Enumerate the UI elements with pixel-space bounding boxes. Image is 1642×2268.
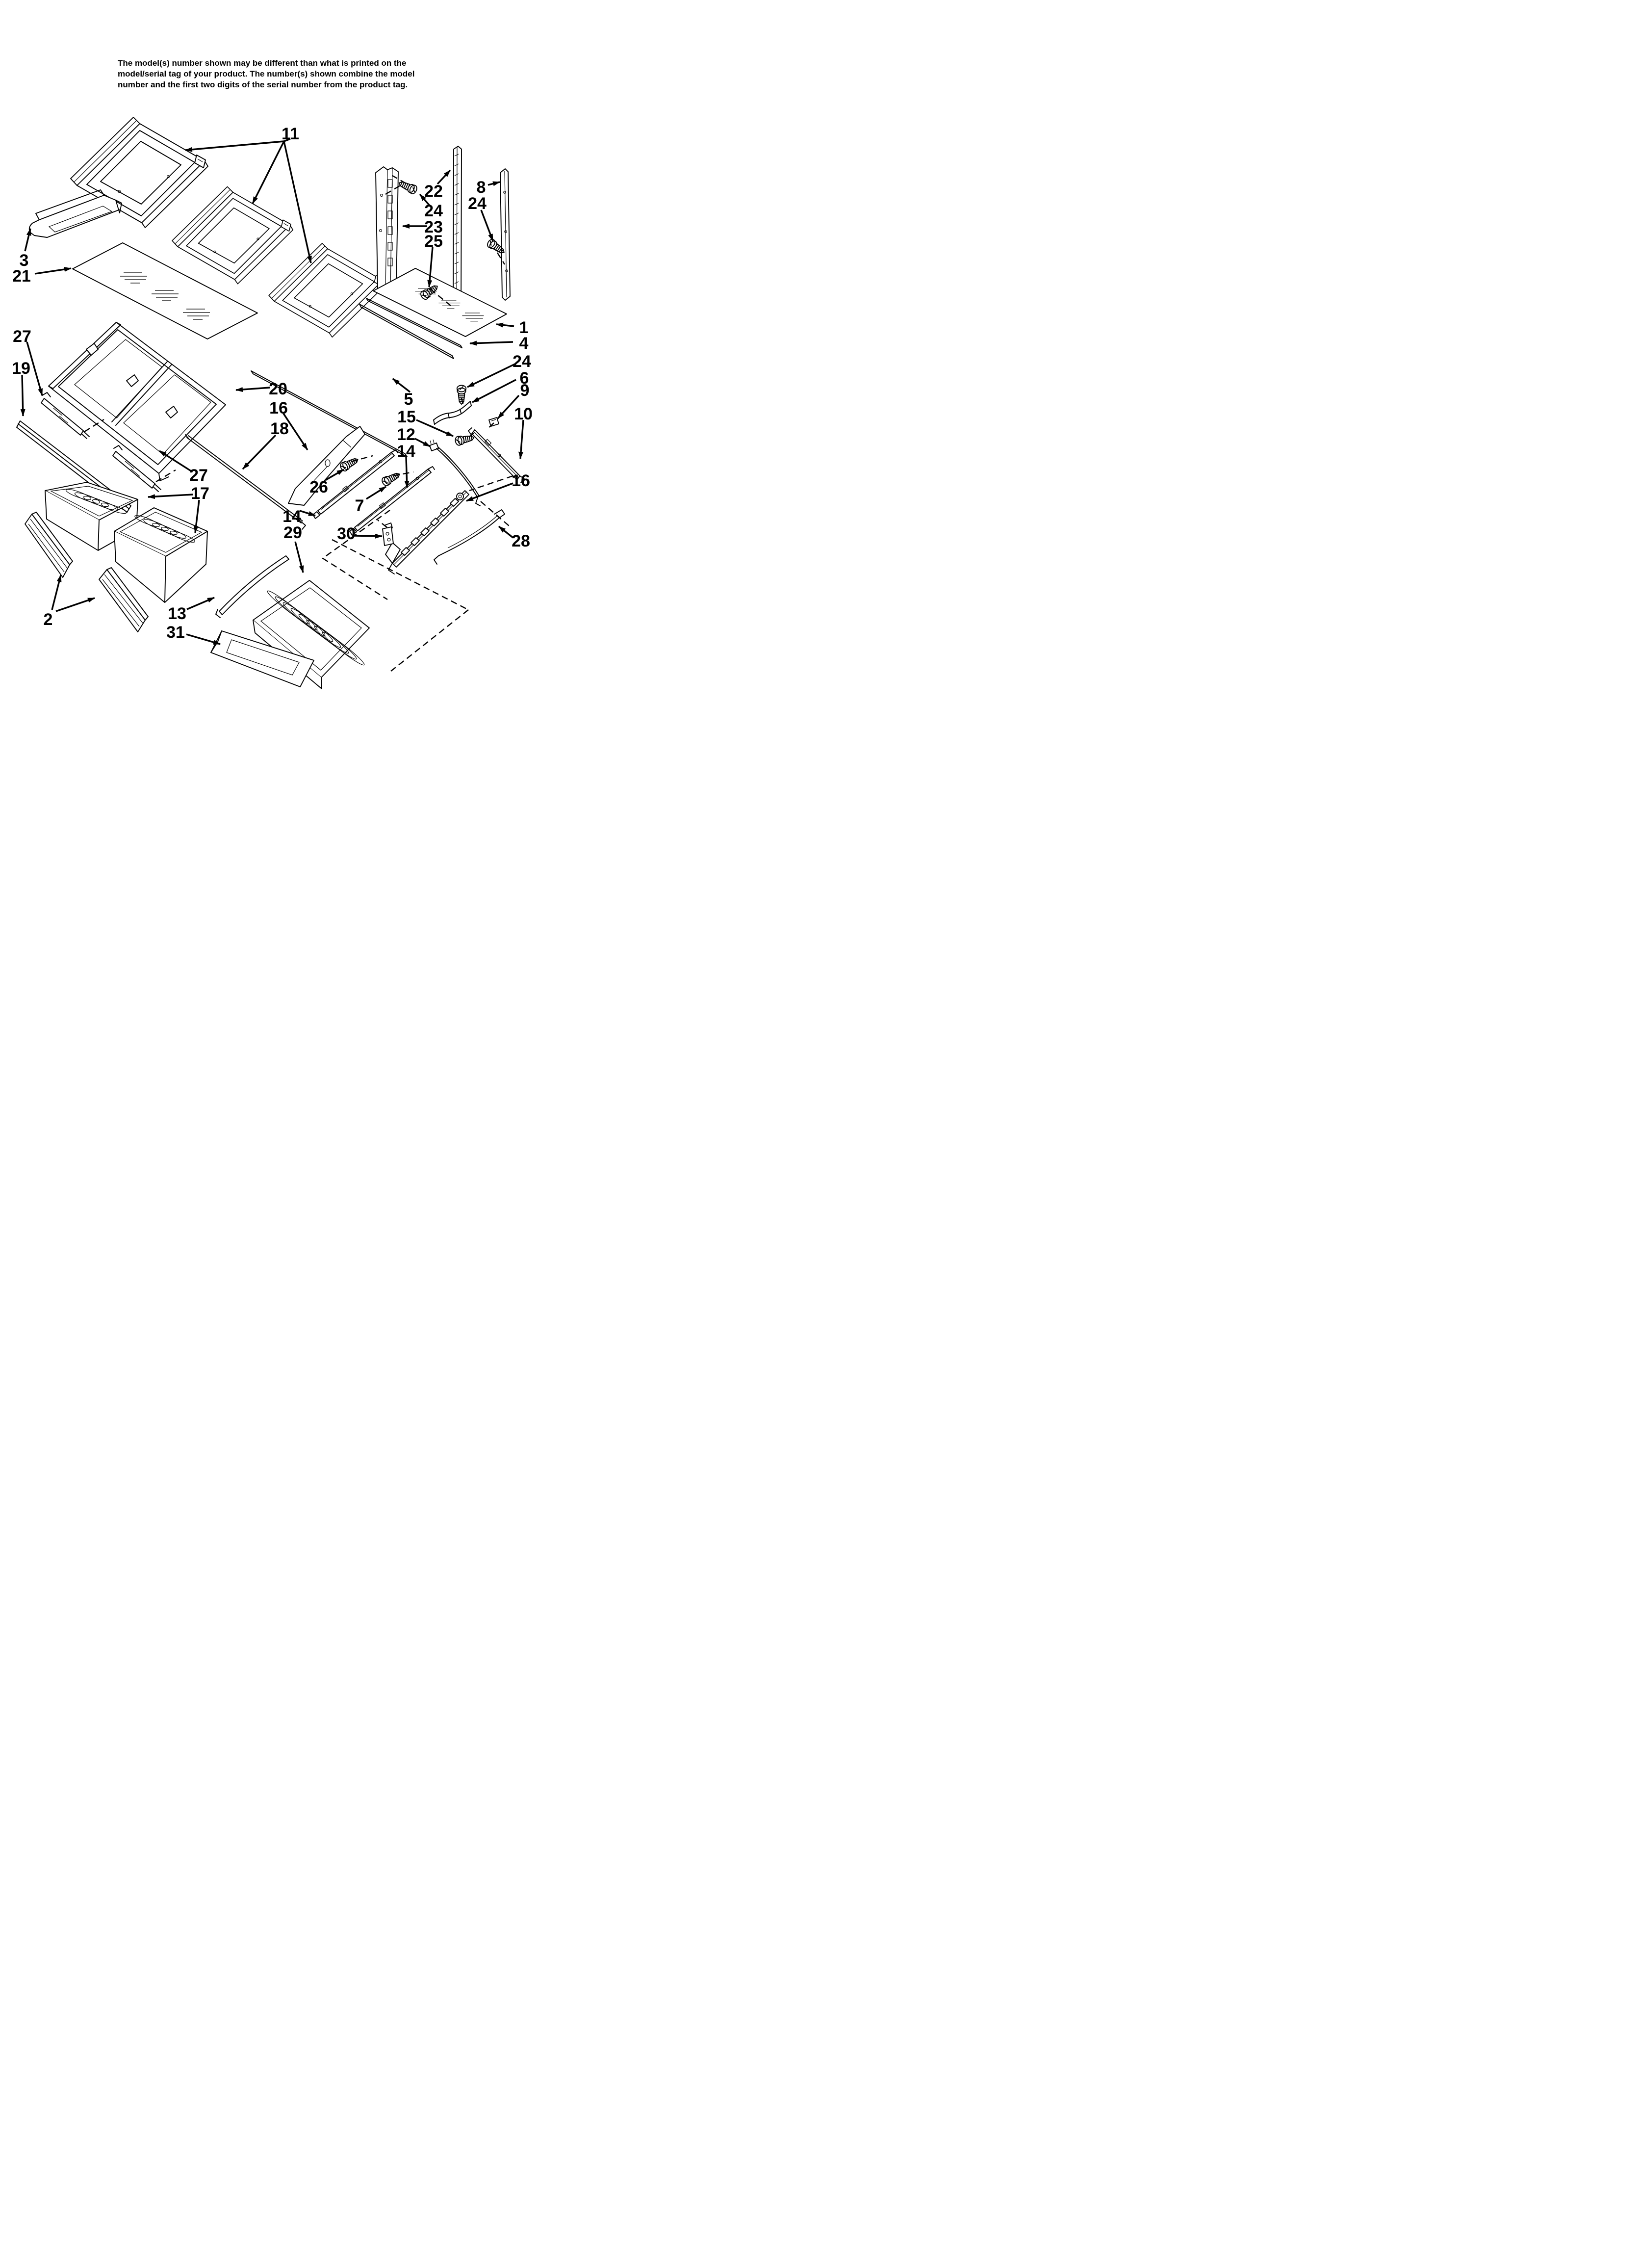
- part-mounting-rail-slotted-short: [376, 167, 398, 292]
- leader-arrow-3: [25, 229, 30, 251]
- leader-arrow-29: [295, 542, 303, 573]
- part-shelf-frame-middle: [172, 187, 293, 284]
- leader-arrow-13: [187, 598, 214, 609]
- leader-arrow-8: [488, 182, 500, 185]
- callout-label-15: 15: [397, 408, 416, 426]
- leader-arrow-2-1: [56, 598, 95, 611]
- leader-arrow-19: [22, 375, 23, 416]
- leader-arrow-10: [520, 420, 523, 459]
- callout-label-7: 7: [355, 496, 364, 515]
- leader-arrow-31: [186, 634, 220, 644]
- part-screw-7: [381, 470, 402, 487]
- callout-label-21: 21: [12, 267, 31, 286]
- callout-label-12: 12: [397, 425, 415, 444]
- leader-arrow-14r: [406, 457, 407, 488]
- leader-arrow-11-3: [284, 141, 311, 263]
- leader-arrow-7: [366, 487, 386, 499]
- callout-label-11: 11: [282, 125, 299, 143]
- leader-arrow-11-2: [253, 141, 284, 204]
- callout-label-31: 31: [166, 623, 185, 642]
- part-wire-link: [430, 440, 480, 506]
- leader-arrow-24b: [481, 210, 493, 241]
- leader-arrow-11-1: [185, 141, 284, 150]
- part-rear-bracket-assembly: [385, 491, 469, 574]
- callout-label-13: 13: [168, 604, 186, 623]
- callout-label-22: 22: [424, 182, 443, 201]
- leader-arrow-1: [496, 324, 514, 326]
- part-crisper-cover-frame: [49, 322, 226, 481]
- callout-label-20: 20: [269, 380, 287, 398]
- leader-arrow-28: [499, 526, 513, 538]
- exploded-parts-diagram: 1234567891011121314141516161718192021222…: [0, 0, 547, 756]
- leader-arrow-14b: [300, 511, 315, 516]
- leader-arrow-2: [52, 575, 61, 610]
- callout-label-16a: 16: [269, 399, 288, 417]
- part-screw-24-upper: [397, 179, 418, 195]
- callout-label-27a: 27: [13, 327, 31, 346]
- callout-label-16b: 16: [512, 471, 530, 490]
- leader-arrow-4: [470, 342, 513, 343]
- leader-arrow-12: [415, 439, 430, 446]
- callout-label-10: 10: [514, 405, 533, 423]
- leader-arrow-6: [472, 380, 516, 402]
- callout-label-24a: 24: [424, 202, 443, 220]
- callout-label-9: 9: [520, 381, 530, 400]
- callout-label-18: 18: [270, 419, 289, 438]
- part-mounting-rail-ladder: [453, 146, 462, 311]
- part-screw-24-center: [457, 386, 466, 405]
- callout-label-4: 4: [519, 334, 529, 353]
- leader-arrow-16b: [466, 483, 513, 501]
- leader-arrow-18: [243, 435, 276, 469]
- callout-label-24b: 24: [468, 194, 487, 213]
- callout-label-25: 25: [424, 232, 443, 251]
- leader-arrow-30: [354, 536, 382, 536]
- leader-arrow-17: [148, 495, 193, 497]
- part-trim-rail-flat: [500, 169, 510, 300]
- callout-label-14r: 14: [397, 442, 415, 461]
- callout-label-5: 5: [404, 390, 413, 409]
- part-latch-bracket: [383, 523, 393, 546]
- callout-label-26: 26: [309, 478, 328, 496]
- leader-arrow-21: [35, 268, 71, 274]
- callout-label-2: 2: [44, 610, 53, 629]
- callout-label-19: 19: [12, 359, 30, 378]
- part-narrow-shelf: [29, 190, 122, 237]
- callout-label-24c: 24: [513, 352, 531, 371]
- callout-label-17: 17: [191, 484, 209, 503]
- leader-arrow-20: [236, 388, 270, 390]
- leader-arrow-15: [416, 420, 453, 436]
- callout-label-30: 30: [337, 524, 356, 543]
- part-shelf-frame-right: [269, 243, 385, 337]
- part-retainer-clip: [489, 417, 499, 426]
- part-corrugated-spacer: [434, 401, 471, 424]
- callout-label-27b: 27: [189, 466, 208, 485]
- parts-diagram-page: The model(s) number shown may be differe…: [0, 0, 547, 756]
- callout-label-28: 28: [512, 532, 530, 550]
- callout-label-29: 29: [283, 523, 302, 542]
